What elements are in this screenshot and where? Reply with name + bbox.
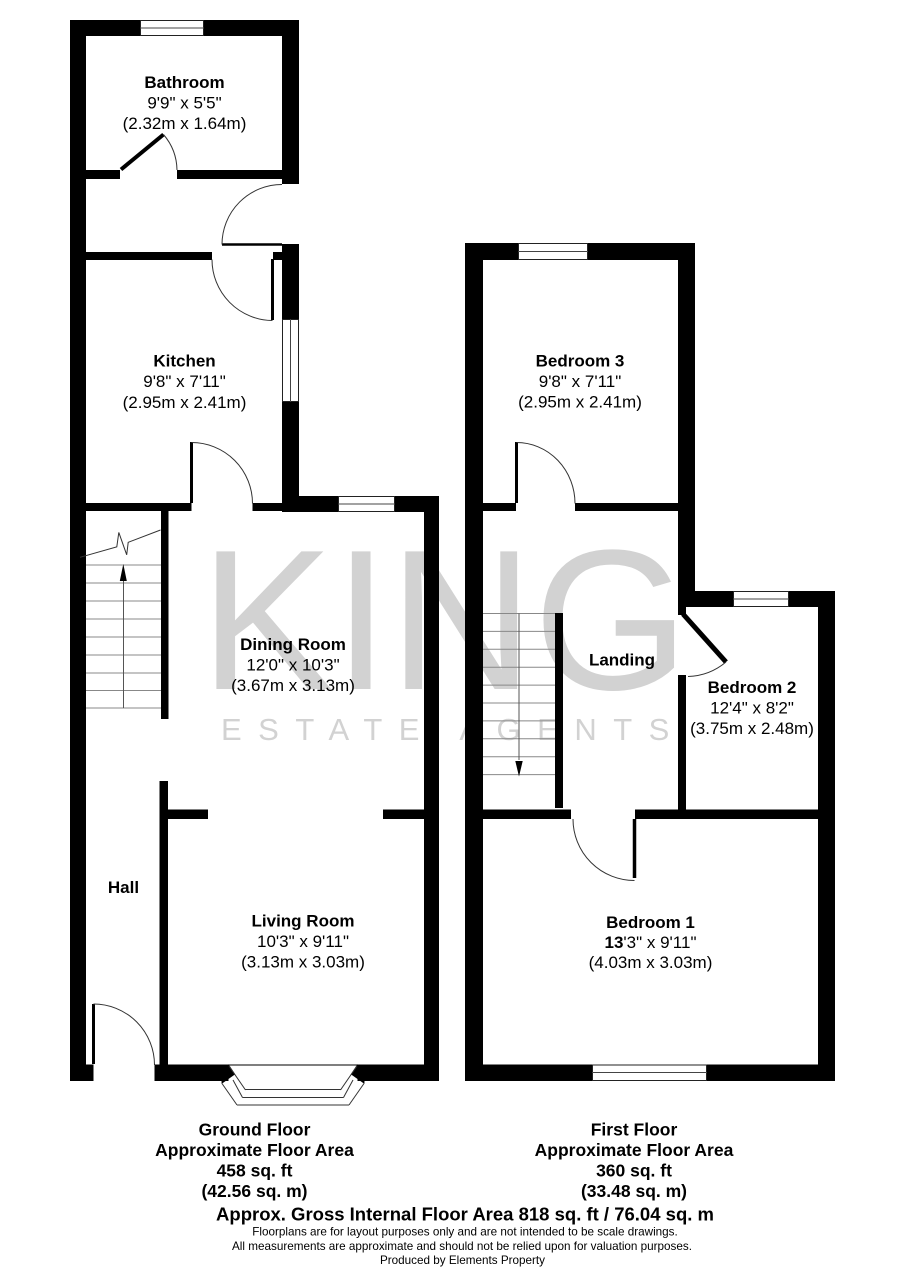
svg-text:Bathroom: Bathroom	[144, 73, 224, 92]
svg-text:12'4" x 8'2": 12'4" x 8'2"	[710, 699, 794, 718]
svg-text:(33.48 sq. m): (33.48 sq. m)	[581, 1181, 687, 1201]
svg-text:Dining Room: Dining Room	[240, 635, 346, 654]
svg-text:(4.03m x 3.03m): (4.03m x 3.03m)	[589, 953, 713, 972]
svg-text:First Floor: First Floor	[591, 1120, 678, 1140]
svg-text:(2.95m x 2.41m): (2.95m x 2.41m)	[518, 393, 642, 412]
svg-text:458 sq. ft: 458 sq. ft	[217, 1161, 293, 1181]
svg-text:Approximate Floor Area: Approximate Floor Area	[155, 1140, 354, 1160]
svg-text:(3.75m x 2.48m): (3.75m x 2.48m)	[690, 719, 814, 738]
svg-text:9'9" x 5'5": 9'9" x 5'5"	[147, 94, 221, 113]
svg-text:Living Room: Living Room	[252, 912, 355, 931]
svg-text:(3.67m x 3.13m): (3.67m x 3.13m)	[231, 676, 355, 695]
svg-text:(2.95m x 2.41m): (2.95m x 2.41m)	[123, 393, 247, 412]
svg-text:360 sq. ft: 360 sq. ft	[596, 1161, 672, 1181]
svg-text:All measurements are approxima: All measurements are approximate and sho…	[232, 1240, 692, 1253]
svg-text:12'0" x 10'3": 12'0" x 10'3"	[246, 656, 339, 675]
svg-text:ESTATE AGENTS: ESTATE AGENTS	[221, 712, 686, 747]
svg-text:13'3" x 9'11": 13'3" x 9'11"	[605, 933, 697, 952]
svg-text:Approx. Gross Internal Floor A: Approx. Gross Internal Floor Area 818 sq…	[216, 1204, 714, 1225]
svg-text:Floorplans are for layout purp: Floorplans are for layout purposes only …	[252, 1226, 678, 1239]
svg-text:(2.32m x 1.64m): (2.32m x 1.64m)	[123, 114, 247, 133]
svg-text:Produced by Elements Property: Produced by Elements Property	[380, 1254, 545, 1267]
svg-text:KING: KING	[200, 509, 689, 732]
svg-text:Approximate Floor Area: Approximate Floor Area	[535, 1140, 734, 1160]
svg-text:Bedroom 3: Bedroom 3	[536, 352, 625, 371]
svg-text:Ground Floor: Ground Floor	[199, 1120, 311, 1140]
svg-text:Bedroom 2: Bedroom 2	[708, 678, 797, 697]
svg-text:9'8" x 7'11": 9'8" x 7'11"	[539, 372, 622, 391]
svg-text:Hall: Hall	[108, 878, 139, 897]
svg-text:10'3" x 9'11": 10'3" x 9'11"	[257, 932, 349, 951]
svg-text:(42.56 sq. m): (42.56 sq. m)	[201, 1181, 307, 1201]
svg-text:Bedroom 1: Bedroom 1	[606, 913, 695, 932]
svg-text:Landing: Landing	[589, 651, 655, 670]
svg-text:Kitchen: Kitchen	[153, 352, 215, 371]
svg-text:(3.13m x 3.03m): (3.13m x 3.03m)	[241, 953, 365, 972]
svg-text:9'8" x 7'11": 9'8" x 7'11"	[143, 372, 226, 391]
